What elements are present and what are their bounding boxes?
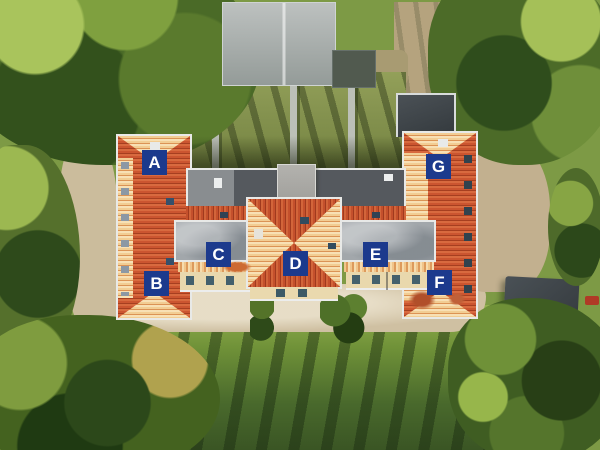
skylight bbox=[372, 212, 380, 218]
aerial-photo: A B C D E F G bbox=[0, 0, 600, 450]
roof-hatch bbox=[438, 139, 448, 147]
facade-post-shadow bbox=[386, 272, 388, 290]
red-car bbox=[585, 296, 599, 305]
garden-shrub bbox=[250, 294, 274, 342]
roof-window-row bbox=[121, 162, 129, 296]
eave-band-e bbox=[344, 262, 434, 272]
facade-windows bbox=[186, 276, 244, 285]
outbuilding-annex-roof bbox=[332, 50, 376, 88]
outbuilding-roof-north bbox=[222, 2, 336, 86]
roof-vent bbox=[214, 178, 222, 188]
facade-windows bbox=[352, 275, 426, 284]
unit-label-f[interactable]: F bbox=[427, 270, 452, 295]
skylight bbox=[300, 217, 309, 224]
roof-window-row bbox=[464, 155, 472, 301]
roof-hatch bbox=[254, 229, 263, 239]
unit-label-c[interactable]: C bbox=[206, 242, 231, 267]
facade-windows bbox=[276, 289, 316, 297]
connector-roof-light-section bbox=[188, 170, 234, 206]
unit-label-b[interactable]: B bbox=[144, 271, 169, 296]
unit-label-e[interactable]: E bbox=[363, 242, 388, 267]
flat-roof-e bbox=[340, 220, 436, 262]
roof-vent bbox=[384, 174, 393, 181]
unit-label-a[interactable]: A bbox=[142, 150, 167, 175]
facade-c bbox=[180, 272, 250, 292]
garden-bushes bbox=[320, 293, 368, 351]
skylight bbox=[166, 258, 174, 265]
tree-canopy-east bbox=[548, 168, 600, 286]
facade-d bbox=[250, 287, 338, 301]
roof-hatch bbox=[150, 142, 160, 150]
unit-label-g[interactable]: G bbox=[426, 154, 451, 179]
facade-e bbox=[346, 272, 432, 290]
skylight bbox=[328, 243, 336, 249]
skylight bbox=[166, 198, 174, 205]
tree-canopy-southeast bbox=[448, 298, 600, 450]
unit-label-d[interactable]: D bbox=[283, 251, 308, 276]
skylight bbox=[220, 212, 228, 218]
